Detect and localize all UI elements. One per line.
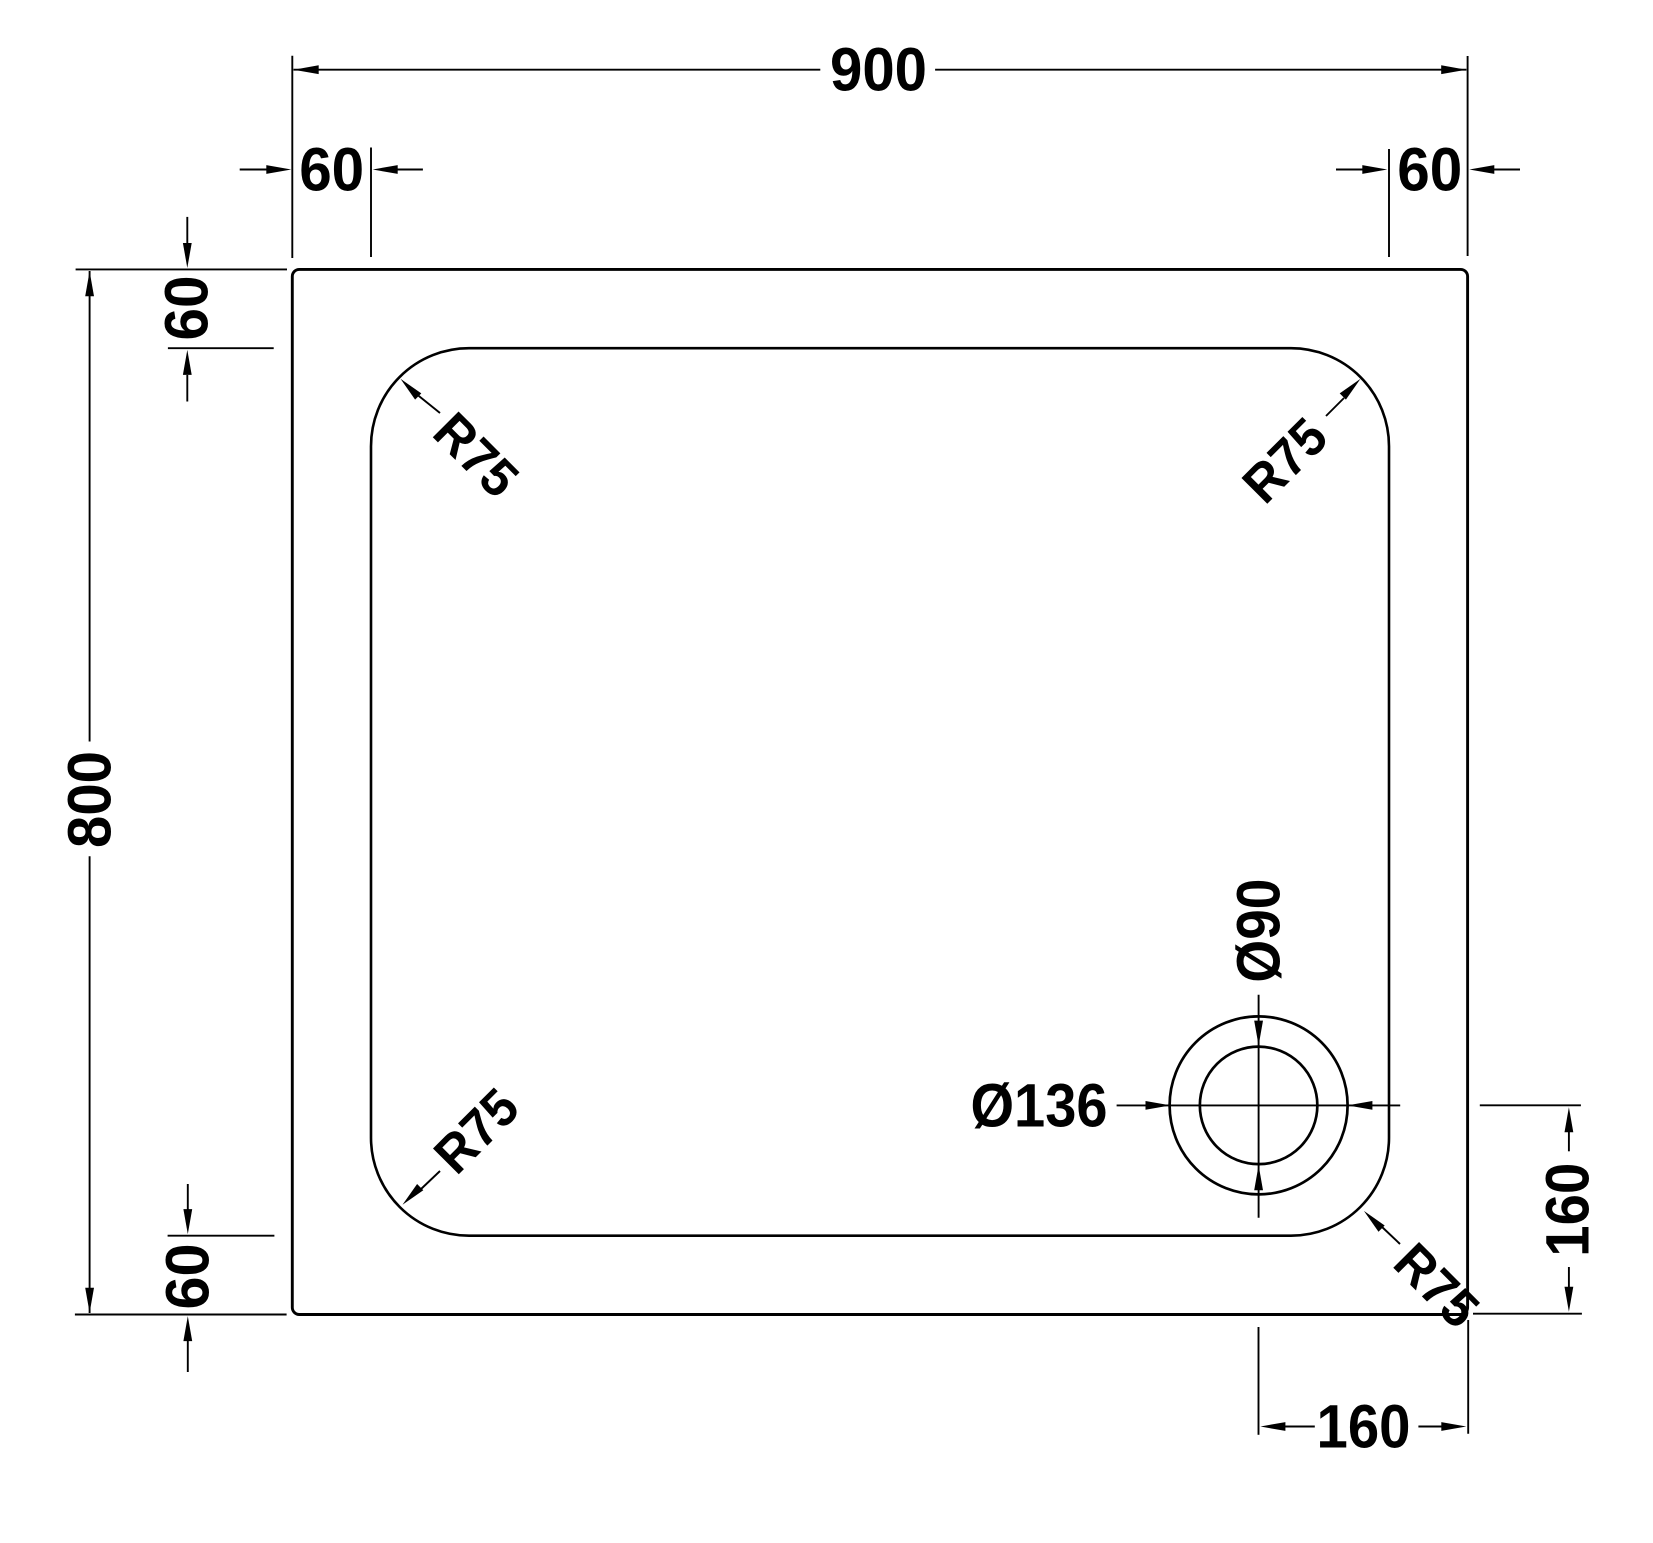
svg-text:R75: R75 bbox=[422, 402, 529, 509]
svg-text:Ø90: Ø90 bbox=[1225, 879, 1293, 983]
svg-text:Ø136: Ø136 bbox=[971, 1071, 1108, 1139]
svg-text:160: 160 bbox=[1533, 1163, 1601, 1257]
svg-text:R75: R75 bbox=[423, 1078, 530, 1185]
svg-text:60: 60 bbox=[299, 136, 364, 204]
svg-text:R75: R75 bbox=[1232, 407, 1339, 514]
svg-text:160: 160 bbox=[1317, 1393, 1411, 1461]
svg-text:60: 60 bbox=[152, 276, 220, 341]
svg-text:60: 60 bbox=[1397, 136, 1462, 204]
svg-text:R75: R75 bbox=[1382, 1232, 1489, 1339]
svg-text:800: 800 bbox=[56, 751, 124, 848]
svg-text:60: 60 bbox=[153, 1244, 221, 1310]
svg-text:900: 900 bbox=[830, 36, 927, 104]
